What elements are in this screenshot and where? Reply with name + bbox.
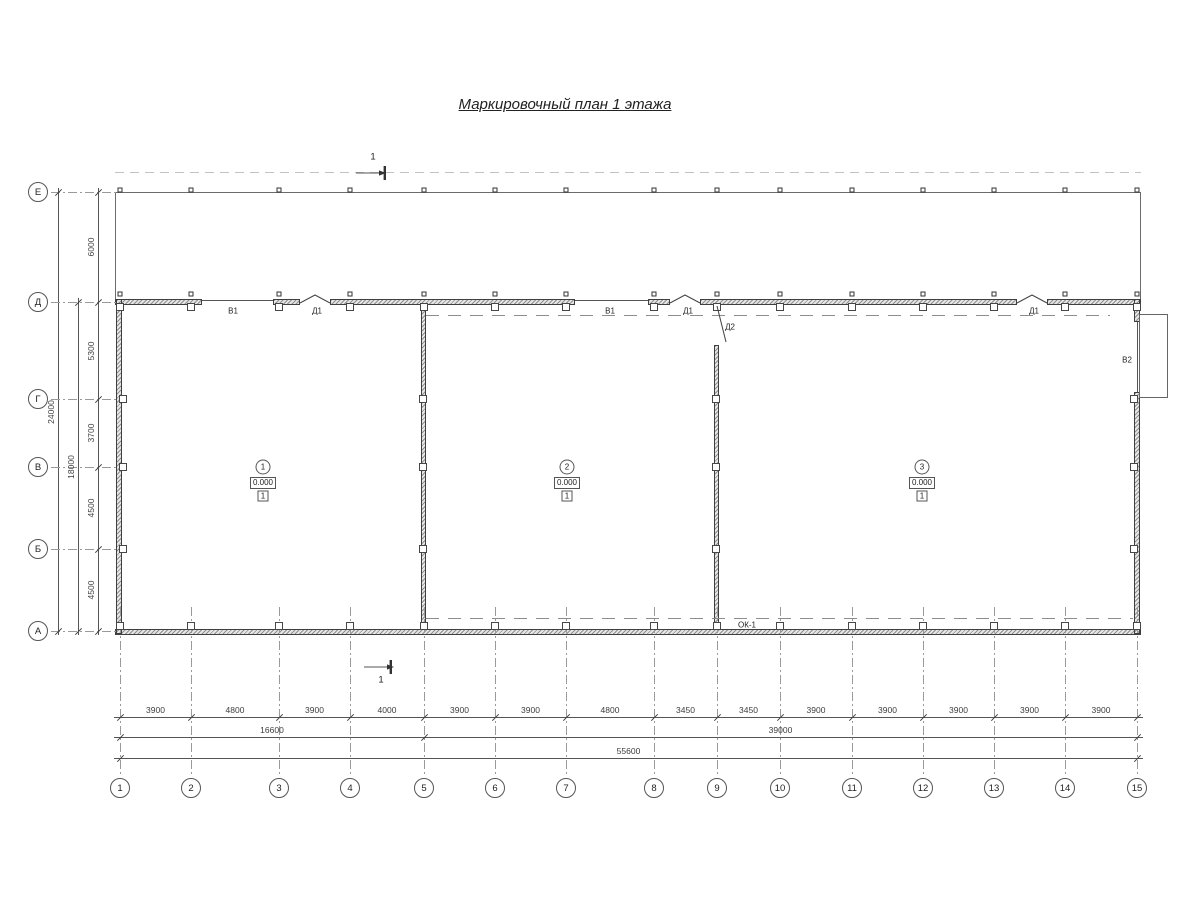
dim-value-vertical: 4500 [86,581,96,600]
opening-label-Д1: Д1 [1029,307,1039,316]
column-mark-top [992,292,997,297]
room-number-2: 2 [560,460,575,475]
wall-bottom [115,629,1141,635]
column-mark-top-inner [1061,303,1069,311]
linework-overlay [0,0,1200,900]
canopy-right-edge [1140,192,1141,299]
canopy-column-mark [715,188,720,193]
dim-value-vertical: 3700 [86,424,96,443]
column-mark-right-wall [1130,395,1138,403]
window-v2-line [1137,322,1138,392]
room-elevation-2: 0.000 [554,477,580,489]
wall-right-lower [1134,392,1140,634]
column-mark-top [652,292,657,297]
column-mark-bottom [713,622,721,630]
dim-value-vertical: 5300 [86,341,96,360]
section-cut-stroke-bottom [390,660,392,674]
column-mark-bottom [346,622,354,630]
canopy-column-mark [778,188,783,193]
canopy-column-mark [564,188,569,193]
opening-label-В2: В2 [1122,356,1132,365]
grid-line-col-8 [654,607,655,777]
column-mark-bottom [275,622,283,630]
column-mark-partition-9 [712,395,720,403]
axis-bubble-col-13: 13 [984,778,1004,798]
dim-value-horizontal: 3900 [878,705,897,715]
dim-value-vertical: 4500 [86,499,96,518]
column-mark-top [422,292,427,297]
column-mark-top [850,292,855,297]
dim-value-horizontal: 4800 [601,705,620,715]
grid-line-col-7 [566,607,567,777]
axis-bubble-col-12: 12 [913,778,933,798]
canopy-column-mark [348,188,353,193]
canopy-column-mark [1135,188,1140,193]
column-mark-partition-9 [712,545,720,553]
axis-bubble-col-8: 8 [644,778,664,798]
dim-value-horizontal: 3900 [146,705,165,715]
column-mark-right-wall [1130,545,1138,553]
dim-value-horizontal: 4000 [378,705,397,715]
dim-line-horizontal-spans [114,717,1143,718]
room-floor-type-1: 1 [258,491,269,502]
grid-line-col-10 [780,607,781,777]
column-mark-bottom [848,622,856,630]
column-mark-top [493,292,498,297]
axis-bubble-col-4: 4 [340,778,360,798]
dim-line-vertical-spans [98,188,99,635]
porch-platform [1139,314,1168,398]
column-mark-partition-9 [712,463,720,471]
column-mark-bottom [1061,622,1069,630]
door-d1-leaf [300,295,330,303]
column-mark-top-inner [1133,303,1141,311]
column-mark-top-inner [562,303,570,311]
column-mark-top [189,292,194,297]
axis-bubble-row-В: В [28,457,48,477]
dim-value-horizontal: 3900 [1020,705,1039,715]
opening-label-В1: В1 [228,307,238,316]
column-mark-bottom [776,622,784,630]
column-mark-top-inner [346,303,354,311]
column-mark-partition-5 [419,545,427,553]
room-number-3: 3 [915,460,930,475]
window-v1-middle [575,300,648,301]
dim-value-vertical: 6000 [86,238,96,257]
opening-label-В1: В1 [605,307,615,316]
column-mark-top-inner [919,303,927,311]
axis-bubble-col-5: 5 [414,778,434,798]
section-mark-label-top: 1 [370,152,375,163]
column-mark-top [921,292,926,297]
dim-value-horizontal: 3900 [521,705,540,715]
wall-top-segment [330,299,575,305]
axis-bubble-col-3: 3 [269,778,289,798]
column-mark-bottom [116,622,124,630]
canopy-edge-line [115,192,1141,193]
column-mark-top [348,292,353,297]
opening-label-ОК-1: ОК-1 [738,621,756,630]
dim-value-horizontal-subtotal: 39000 [769,725,793,735]
section-mark-label-bottom: 1 [378,675,383,686]
axis-bubble-col-1: 1 [110,778,130,798]
column-mark-top-inner [116,303,124,311]
door-d1-leaf [1017,295,1047,303]
column-mark-top-inner [650,303,658,311]
column-mark-top-inner [990,303,998,311]
dim-value-horizontal: 3450 [739,705,758,715]
column-mark-top [715,292,720,297]
dim-value-horizontal: 3900 [949,705,968,715]
column-mark-bottom [919,622,927,630]
grid-line-col-5 [424,607,425,777]
section-cut-stroke-top [384,166,386,180]
column-mark-top-inner [420,303,428,311]
grid-line-col-13 [994,607,995,777]
canopy-column-mark [850,188,855,193]
column-mark-top-inner [491,303,499,311]
column-mark-top [1135,292,1140,297]
canopy-column-mark [992,188,997,193]
canopy-column-mark [652,188,657,193]
column-mark-bottom [562,622,570,630]
opening-label-Д1: Д1 [683,307,693,316]
canopy-column-mark [277,188,282,193]
column-mark-top-inner [713,303,721,311]
column-mark-top-inner [848,303,856,311]
dim-value-horizontal: 3900 [305,705,324,715]
dim-value-horizontal: 3900 [1092,705,1111,715]
dim-line-horizontal-subtotals [114,737,1143,738]
axis-bubble-row-Г: Г [28,389,48,409]
column-mark-bottom [990,622,998,630]
dim-value-horizontal: 3900 [807,705,826,715]
column-mark-left-wall [119,463,127,471]
column-mark-bottom [650,622,658,630]
axis-bubble-row-А: А [28,621,48,641]
dim-line-vertical-total [58,188,59,635]
grid-line-col-6 [495,607,496,777]
grid-line-col-9 [717,607,718,777]
dim-value-horizontal-subtotal: 16600 [260,725,284,735]
opening-label-Д2: Д2 [725,323,735,332]
room-elevation-1: 0.000 [250,477,276,489]
grid-line-row-Е [51,192,117,193]
column-mark-bottom [1133,622,1141,630]
column-mark-right-wall [1130,463,1138,471]
opening-label-Д1: Д1 [312,307,322,316]
canopy-column-mark [189,188,194,193]
column-mark-top-inner [776,303,784,311]
canopy-column-mark [118,188,123,193]
dim-value-vertical-subtotal: 18000 [66,455,76,479]
window-v1-left [202,300,273,301]
axis-bubble-col-11: 11 [842,778,862,798]
axis-bubble-row-Е: Е [28,182,48,202]
column-mark-top [277,292,282,297]
canopy-column-mark [493,188,498,193]
grid-line-row-В [51,467,117,468]
room-floor-type-2: 1 [562,491,573,502]
dim-value-horizontal: 4800 [226,705,245,715]
grid-line-col-2 [191,607,192,777]
canopy-column-mark [422,188,427,193]
dim-value-vertical-total: 24000 [46,400,56,424]
canopy-column-mark [1063,188,1068,193]
grid-line-col-12 [923,607,924,777]
column-mark-left-wall [119,545,127,553]
axis-bubble-row-Д: Д [28,292,48,312]
floor-plan-drawing: Маркировочный план 1 этажа 1 1 ЕДГВБА123… [0,0,1200,900]
grid-line-col-1 [120,607,121,777]
column-mark-partition-5 [419,463,427,471]
axis-bubble-col-15: 15 [1127,778,1147,798]
grid-line-row-Б [51,549,117,550]
section-arrowhead-bottom [387,664,394,669]
dim-line-horizontal-total [114,758,1143,759]
partition-axis-9 [714,345,719,629]
column-mark-top [1063,292,1068,297]
column-mark-top-inner [275,303,283,311]
grid-line-col-15 [1137,607,1138,777]
axis-bubble-row-Б: Б [28,539,48,559]
axis-bubble-col-6: 6 [485,778,505,798]
column-mark-top [564,292,569,297]
overhead-dashed-top [426,315,1110,316]
canopy-left-edge [115,192,116,299]
column-mark-bottom [420,622,428,630]
drawing-title: Маркировочный план 1 этажа [415,96,715,113]
axis-bubble-col-10: 10 [770,778,790,798]
door-d1-leaf [670,295,700,303]
column-mark-top [118,292,123,297]
dim-value-horizontal: 3450 [676,705,695,715]
grid-line-row-А [51,631,117,632]
wall-top-segment [700,299,1017,305]
column-mark-top-inner [187,303,195,311]
roof-overhang-dashed-line [115,172,1141,173]
axis-bubble-col-7: 7 [556,778,576,798]
grid-line-col-4 [350,607,351,777]
grid-line-row-Г [51,399,117,400]
grid-line-col-3 [279,607,280,777]
dim-value-horizontal: 3900 [450,705,469,715]
axis-bubble-col-2: 2 [181,778,201,798]
axis-bubble-col-9: 9 [707,778,727,798]
grid-line-col-11 [852,607,853,777]
grid-line-col-14 [1065,607,1066,777]
column-mark-partition-5 [419,395,427,403]
room-floor-type-3: 1 [917,491,928,502]
room-elevation-3: 0.000 [909,477,935,489]
room-number-1: 1 [256,460,271,475]
column-mark-bottom [491,622,499,630]
grid-line-row-Д [51,302,117,303]
axis-bubble-col-14: 14 [1055,778,1075,798]
dim-value-horizontal-total: 55600 [617,746,641,756]
column-mark-bottom [187,622,195,630]
column-mark-left-wall [119,395,127,403]
canopy-column-mark [921,188,926,193]
column-mark-top [778,292,783,297]
